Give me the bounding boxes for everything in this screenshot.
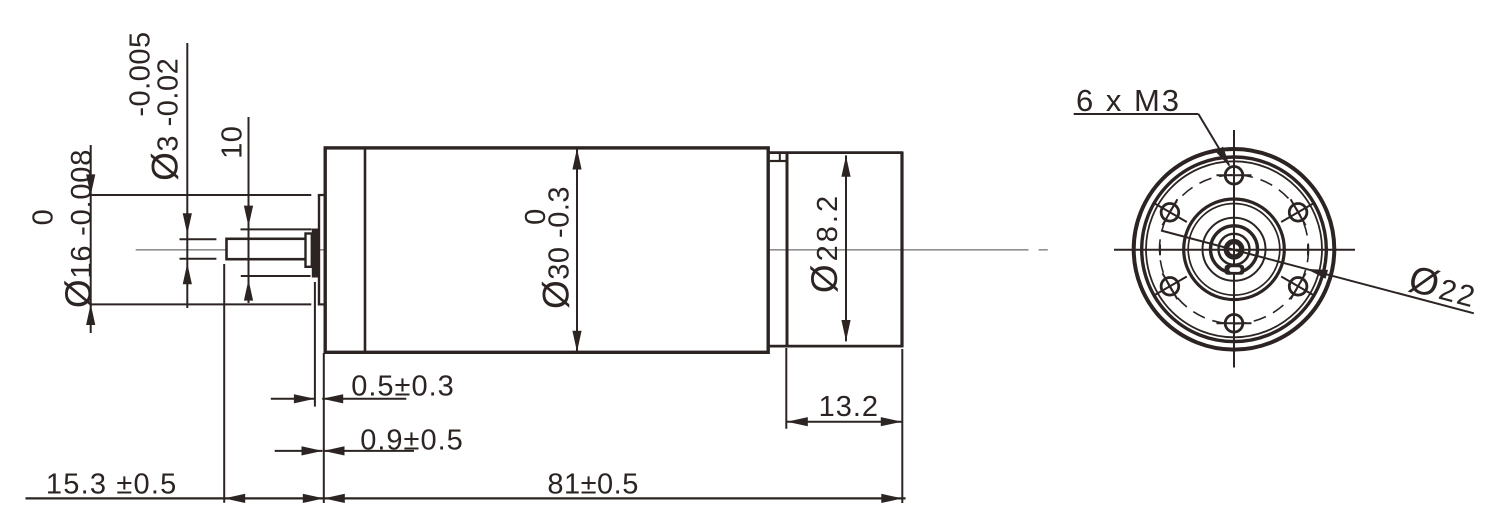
svg-text:10: 10: [217, 126, 249, 159]
svg-text:0.5±0.3: 0.5±0.3: [351, 371, 455, 403]
svg-text:-0.005: -0.005: [124, 31, 156, 116]
svg-text:15.3 ±0.5: 15.3 ±0.5: [46, 469, 178, 501]
svg-text:81±0.5: 81±0.5: [547, 469, 639, 501]
svg-text:13.2: 13.2: [819, 391, 879, 423]
svg-text:0: 0: [28, 209, 60, 226]
svg-text:0.9±0.5: 0.9±0.5: [360, 425, 464, 457]
svg-text:6 x M3: 6 x M3: [1076, 83, 1181, 118]
